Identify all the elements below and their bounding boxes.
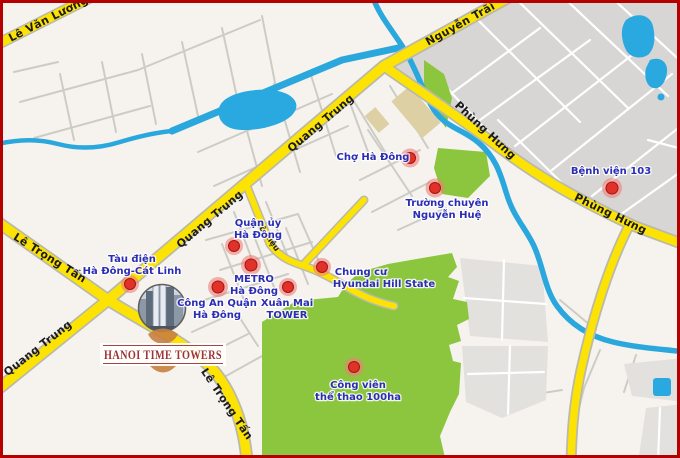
lake-northeast-1 — [622, 15, 655, 57]
label-benh-vien-103: Bệnh viện 103 — [571, 165, 651, 177]
marker-tau-dien — [121, 275, 139, 293]
marker-cong-vien — [345, 358, 364, 377]
label-hyundai-1: Chung cư — [335, 267, 388, 278]
label-xuan-mai-2: TOWER — [267, 310, 308, 321]
label-quan-uy-2: Hà Đông — [234, 229, 282, 241]
marker-hyundai — [313, 258, 331, 276]
marker-truong-chuyen — [426, 179, 445, 198]
label-tau-dien-2: Hà Đông-Cát Linh — [83, 265, 182, 277]
marker-cong-an — [208, 277, 228, 297]
marker-metro — [241, 255, 261, 275]
label-cong-vien-1: Công viên — [330, 379, 386, 391]
label-cong-vien-2: thể thao 100ha — [315, 390, 401, 403]
label-truong-chuyen-1: Trường chuyên — [406, 197, 489, 209]
map-viewport: Lê Văn Lương Nguyễn Trãi Quang Trung Qua… — [0, 0, 680, 458]
label-cong-an-1: Công An Quận — [177, 297, 257, 309]
label-hyundai-2: Hyundai Hill State — [333, 279, 436, 290]
label-quan-uy-1: Quận ủy — [235, 217, 282, 229]
label-cho-ha-dong: Chợ Hà Đông — [337, 151, 410, 163]
marker-xuan-mai — [279, 278, 297, 296]
label-truong-chuyen-2: Nguyễn Huệ — [413, 208, 482, 221]
label-tau-dien-1: Tàu điện — [108, 253, 156, 265]
pond-northeast — [658, 94, 665, 101]
logo-title: HANOI TIME TOWERS — [104, 347, 222, 362]
hanoi-time-towers-location-map: Lê Văn Lương Nguyễn Trãi Quang Trung Qua… — [0, 0, 680, 458]
marker-benh-vien-103 — [602, 178, 622, 198]
label-cong-an-2: Hà Đông — [193, 309, 241, 321]
label-metro-1: METRO — [234, 274, 274, 285]
label-xuan-mai-1: Xuân Mai — [261, 297, 313, 309]
pond-southeast — [653, 378, 671, 396]
label-metro-2: Hà Đông — [230, 285, 278, 297]
